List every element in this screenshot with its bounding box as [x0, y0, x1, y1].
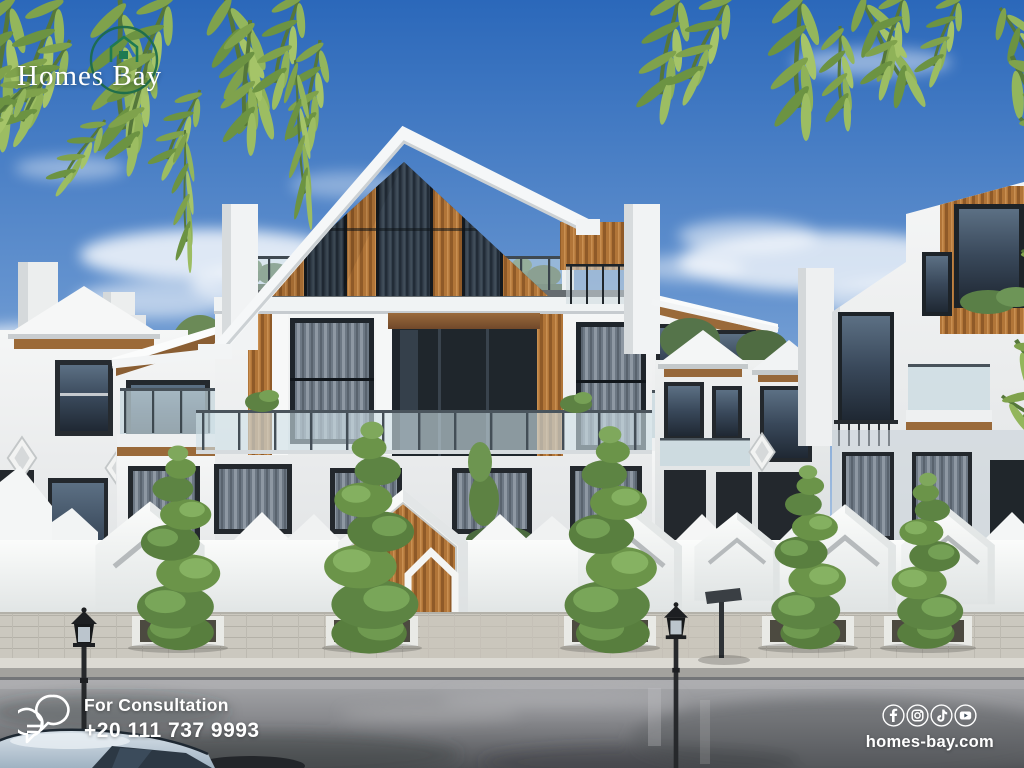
consultation-label: For Consultation — [84, 695, 260, 716]
street-sign-pole — [719, 602, 724, 658]
youtube-icon[interactable] — [954, 704, 977, 727]
website-text: homes-bay.com — [866, 733, 994, 752]
real-estate-poster: Homes Bay For Consultation +20 111 737 9… — [0, 0, 1024, 768]
scene-illustration — [0, 0, 1024, 768]
chat-bubbles-icon — [18, 692, 70, 746]
footer-right: homes-bay.com — [866, 704, 994, 752]
social-icons — [866, 704, 994, 727]
tiktok-icon[interactable] — [930, 704, 953, 727]
instagram-icon[interactable] — [906, 704, 929, 727]
consultation-block: For Consultation +20 111 737 9993 — [18, 692, 260, 746]
facebook-icon[interactable] — [882, 704, 905, 727]
consultation-phone: +20 111 737 9993 — [84, 719, 260, 743]
